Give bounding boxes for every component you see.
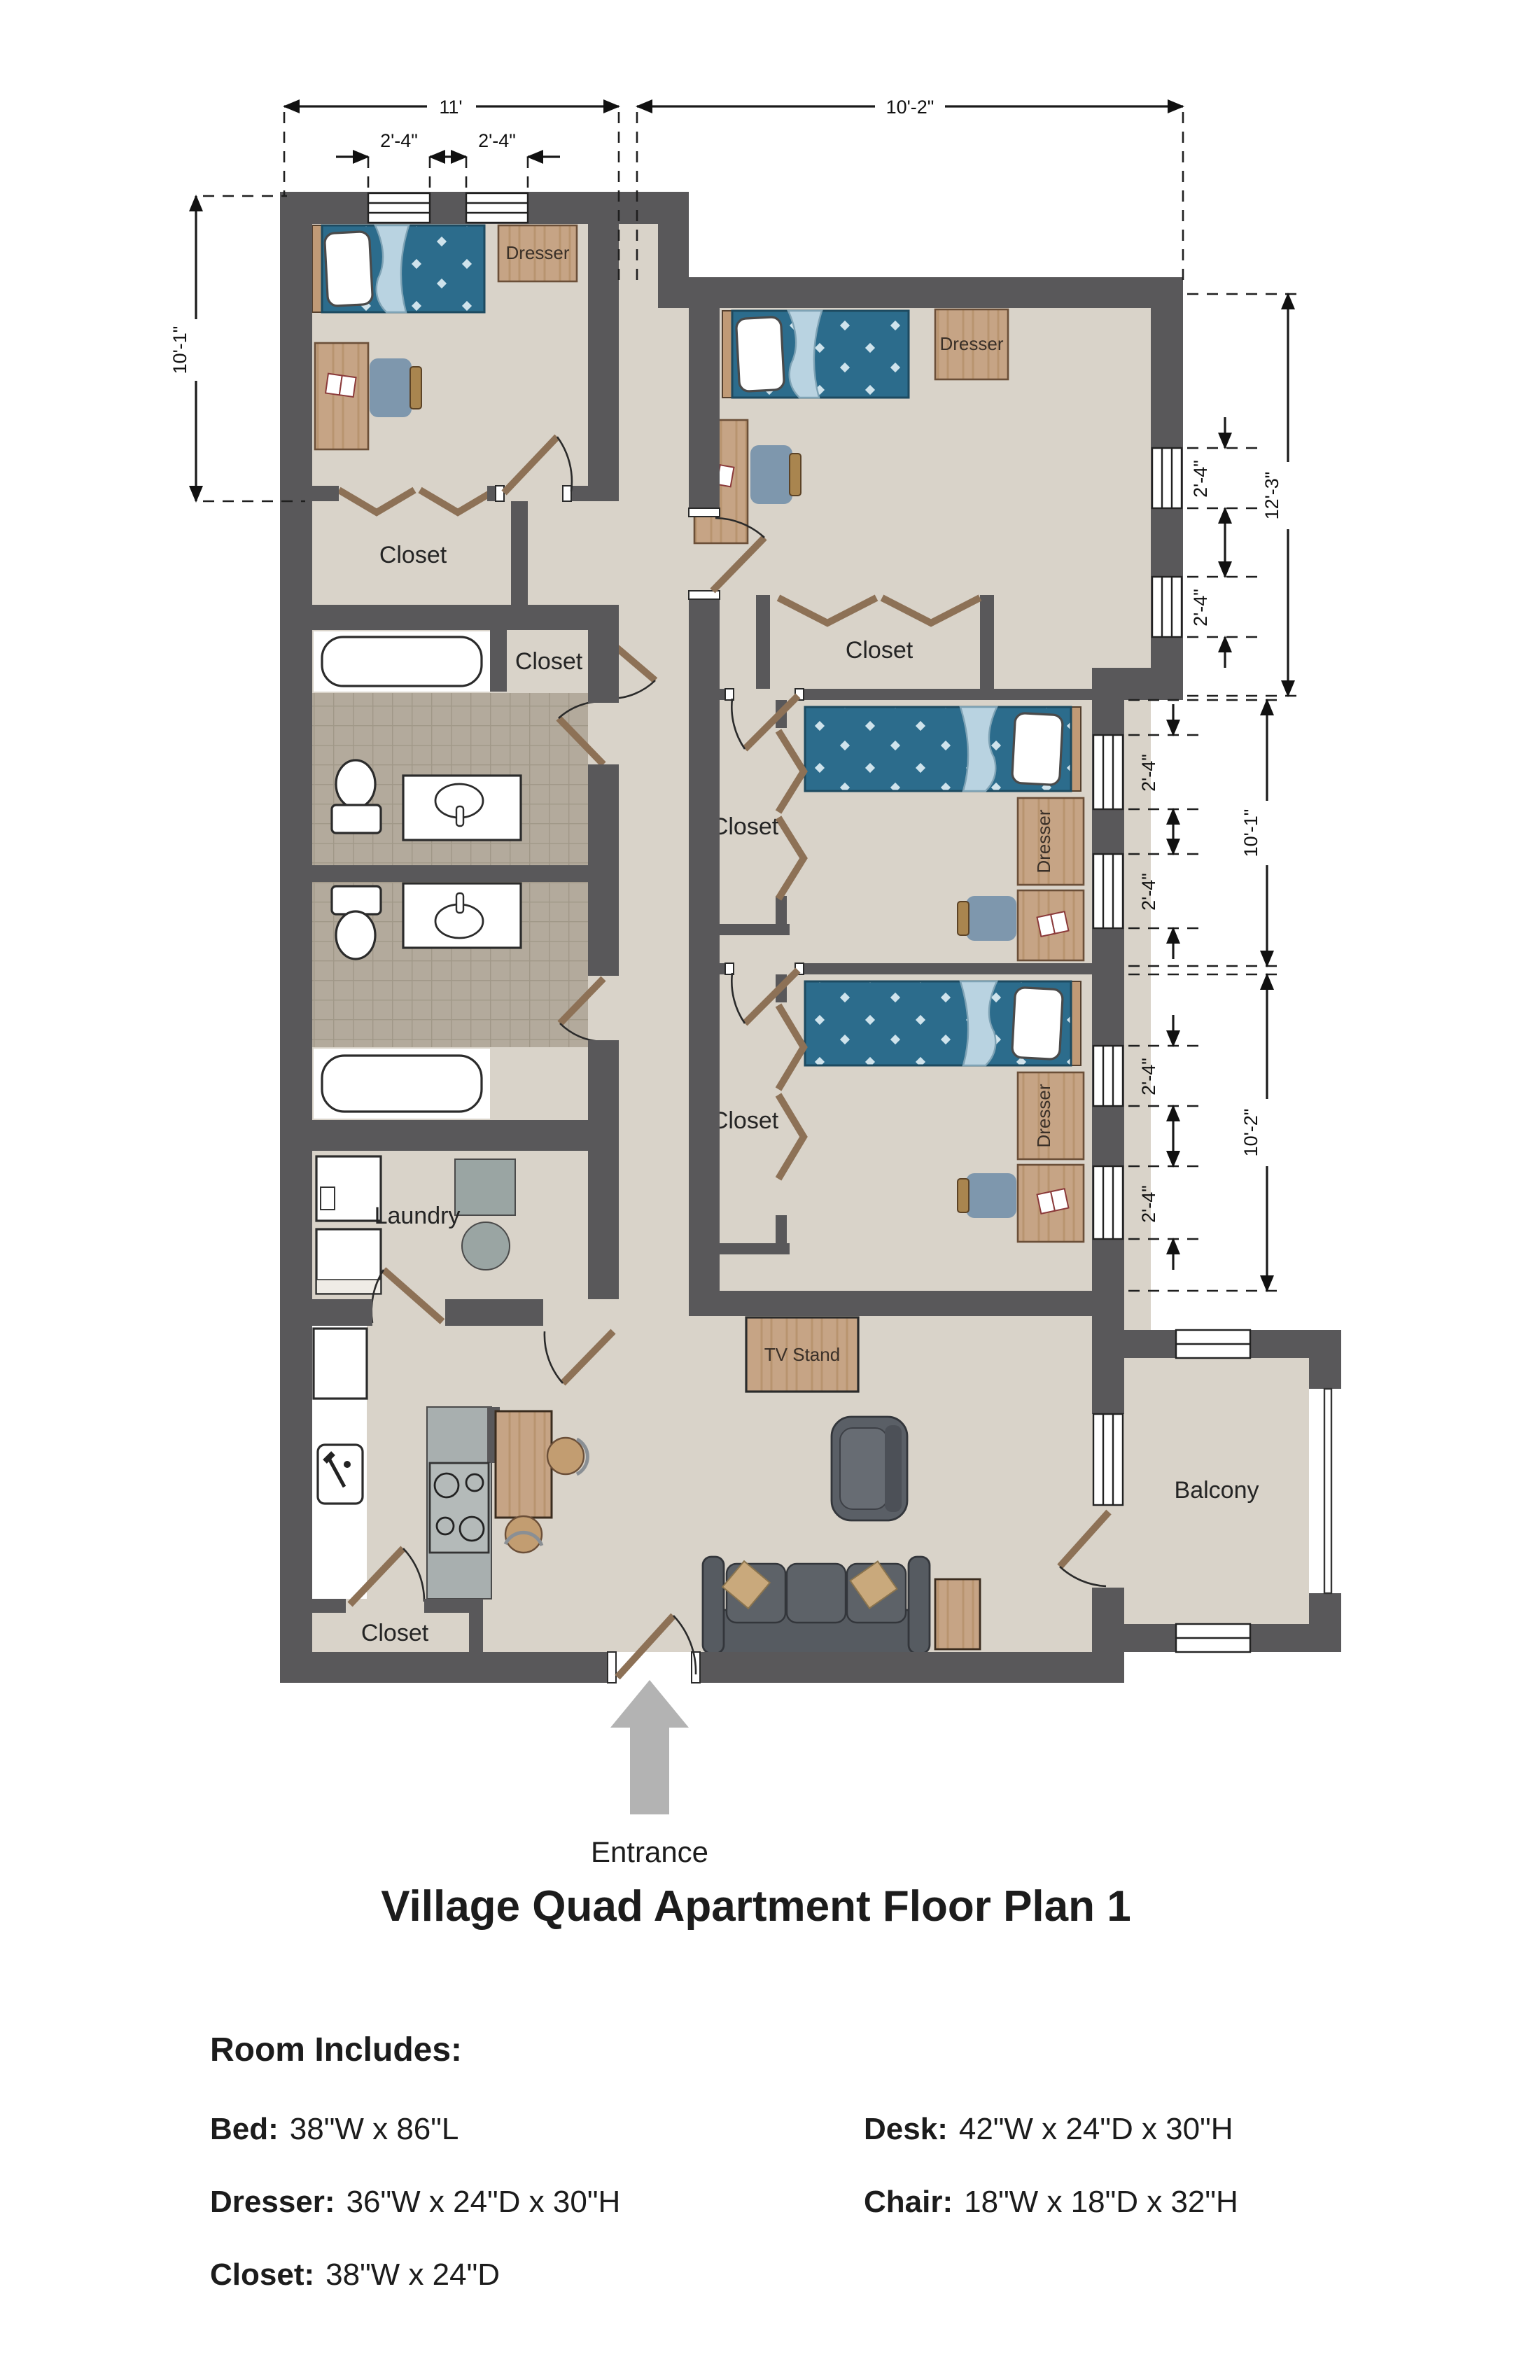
chair-back: [958, 902, 969, 935]
legend-item-bed-value: 38"W x 86"L: [290, 2112, 459, 2146]
legend-item-closet-value: 38"W x 24"D: [325, 2257, 500, 2292]
dim-window: 2'-4": [1138, 873, 1159, 911]
desk: [315, 343, 368, 449]
sink-vanity: [403, 776, 521, 840]
living-room-window: [1093, 1414, 1123, 1505]
legend: Room Includes: Bed:38"W x 86"L Dresser:3…: [210, 2031, 1238, 2292]
dim-window: 2'-4": [1190, 589, 1211, 626]
bedroom2-3-wall: [801, 689, 1092, 700]
dresser: Dresser: [935, 309, 1008, 379]
right-rooms-floor: [689, 308, 1151, 1652]
pillow: [1011, 987, 1063, 1059]
tv-stand: TV Stand: [746, 1317, 858, 1392]
dresser-label: Dresser: [1033, 809, 1054, 873]
sofa: [703, 1557, 930, 1653]
sink-vanity: [403, 883, 521, 948]
bedroom1-window: [368, 193, 430, 223]
closet-label: Closet: [846, 637, 913, 664]
fridge: [314, 1329, 367, 1399]
legend-item-chair-label: Chair:: [864, 2185, 953, 2219]
open-book: [325, 374, 356, 397]
entrance-arrow: [610, 1680, 689, 1814]
legend-item-bed: Bed:38"W x 86"L: [210, 2112, 458, 2146]
dim-bedroom2-height: 12'-3": [1261, 472, 1282, 520]
legend-item-bed-label: Bed:: [210, 2112, 279, 2146]
balcony-post: [1309, 1330, 1341, 1389]
bedroom4-window: [1093, 1046, 1123, 1106]
bedroom3-window: [1093, 854, 1123, 928]
bath2-laundry-wall: [312, 1120, 588, 1151]
bedroom34-west-wall: [689, 700, 720, 1291]
washer-door-detail: [321, 1187, 335, 1210]
dim-bedroom1-width: 11': [439, 97, 462, 118]
bath-hall-wall: [312, 605, 619, 630]
bedroom4-window: [1093, 1166, 1123, 1239]
outer-wall-west: [280, 192, 312, 1683]
dresser-label: Dresser: [1033, 1084, 1054, 1147]
sofa-cushion: [787, 1564, 846, 1623]
outer-wall-north-right: [658, 277, 1183, 308]
dim-window: 2'-4": [1138, 1185, 1159, 1223]
bedroom2-window: [1152, 448, 1182, 508]
plan-title: Village Quad Apartment Floor Plan 1: [381, 1882, 1130, 1931]
chair: [750, 445, 792, 504]
outer-wall-south-right: [697, 1652, 1124, 1683]
bedroom2-west-wall: [689, 277, 720, 515]
chair: [966, 896, 1016, 941]
sofa-arm: [909, 1557, 930, 1653]
legend-item-chair-value: 18"W x 18"D x 32"H: [964, 2185, 1238, 2219]
legend-item-dresser-label: Dresser:: [210, 2185, 335, 2219]
chair: [966, 1173, 1016, 1218]
bed: [805, 707, 1081, 791]
closet-label: Closet: [515, 648, 583, 675]
dim-window: 2'-4": [380, 130, 418, 151]
floor-plan-page: Dresser Dresser: [0, 0, 1540, 2380]
dim-bedroom4-height: 10'-2": [1240, 1109, 1261, 1157]
closet-label: Closet: [711, 813, 779, 840]
legend-item-dresser-value: 36"W x 24"D x 30"H: [346, 2185, 621, 2219]
dim-bedroom1-height: 10'-1": [169, 326, 190, 374]
side-table: [935, 1579, 980, 1649]
chair-back: [790, 454, 801, 496]
laundry-label: Laundry: [374, 1203, 461, 1229]
legend-item-chair: Chair:18"W x 18"D x 32"H: [864, 2185, 1238, 2219]
stove: [430, 1463, 489, 1553]
bathroom-divider-wall: [312, 865, 588, 882]
legend-heading: Room Includes:: [210, 2031, 462, 2068]
kitchen-sink: [318, 1445, 363, 1504]
tv-stand-label: TV Stand: [764, 1344, 840, 1365]
pillow: [324, 231, 372, 306]
chair-back: [410, 367, 421, 409]
closet-label: Closet: [379, 542, 447, 568]
dim-window: 2'-4": [1138, 1058, 1159, 1095]
bedroom3-4-wall: [801, 963, 1092, 974]
armchair: [832, 1417, 907, 1520]
floor-plan-drawing: Dresser Dresser: [0, 0, 1540, 2380]
dim-bedroom3-height: 10'-1": [1240, 809, 1261, 857]
legend-item-closet: Closet:38"W x 24"D: [210, 2257, 500, 2292]
bedroom1-window: [466, 193, 528, 223]
balcony-post: [1309, 1593, 1341, 1652]
legend-item-desk-value: 42"W x 24"D x 30"H: [959, 2112, 1233, 2146]
utility-box: [455, 1159, 515, 1215]
closet-label: Closet: [361, 1620, 429, 1646]
dresser: Dresser: [498, 225, 577, 281]
dining-chair: [547, 1438, 584, 1474]
dresser-label: Dresser: [505, 242, 569, 263]
closet-label: Closet: [711, 1107, 779, 1134]
dresser-label: Dresser: [939, 333, 1003, 354]
armchair-back: [885, 1425, 902, 1512]
corridor-floor: [619, 224, 689, 1652]
outer-wall-south-left: [280, 1652, 612, 1683]
dining-chair: [505, 1516, 542, 1553]
chair: [370, 358, 412, 417]
faucet: [456, 806, 463, 826]
faucet: [456, 893, 463, 913]
sofa-arm: [703, 1557, 724, 1653]
bedroom2-window: [1152, 577, 1182, 637]
legend-item-desk-label: Desk:: [864, 2112, 948, 2146]
utility-basin: [462, 1222, 510, 1270]
dim-bedroom2-width: 10'-2": [886, 97, 934, 118]
bed: [312, 225, 484, 312]
bedroom3-window: [1093, 735, 1123, 809]
dresser: Dresser: [1018, 1072, 1084, 1159]
legend-item-closet-label: Closet:: [210, 2257, 314, 2292]
bedroom4-living-wall: [689, 1291, 1092, 1316]
pillow: [1011, 713, 1063, 785]
bedroom1-east-wall: [588, 192, 619, 501]
dresser: Dresser: [1018, 798, 1084, 885]
dim-window: 2'-4": [478, 130, 516, 151]
legend-item-dresser: Dresser:36"W x 24"D x 30"H: [210, 2185, 620, 2219]
living-east-wall-upper: [1092, 1323, 1124, 1414]
balcony-label: Balcony: [1175, 1477, 1259, 1504]
balcony-rail: [1324, 1389, 1331, 1593]
pillow: [736, 316, 784, 391]
legend-item-desk: Desk:42"W x 24"D x 30"H: [864, 2112, 1233, 2146]
bed: [722, 311, 909, 398]
dim-window: 2'-4": [1138, 754, 1159, 792]
living-east-wall-lower: [1092, 1588, 1124, 1652]
dim-window: 2'-4": [1190, 460, 1211, 498]
bed: [805, 981, 1081, 1065]
dryer-detail: [316, 1280, 381, 1294]
bathtub: [322, 637, 482, 686]
entrance-label: Entrance: [591, 1835, 708, 1868]
chair-back: [958, 1179, 969, 1212]
bathtub: [322, 1056, 482, 1112]
dining-table: [496, 1411, 552, 1518]
entrance-marker: Entrance: [591, 1680, 708, 1868]
